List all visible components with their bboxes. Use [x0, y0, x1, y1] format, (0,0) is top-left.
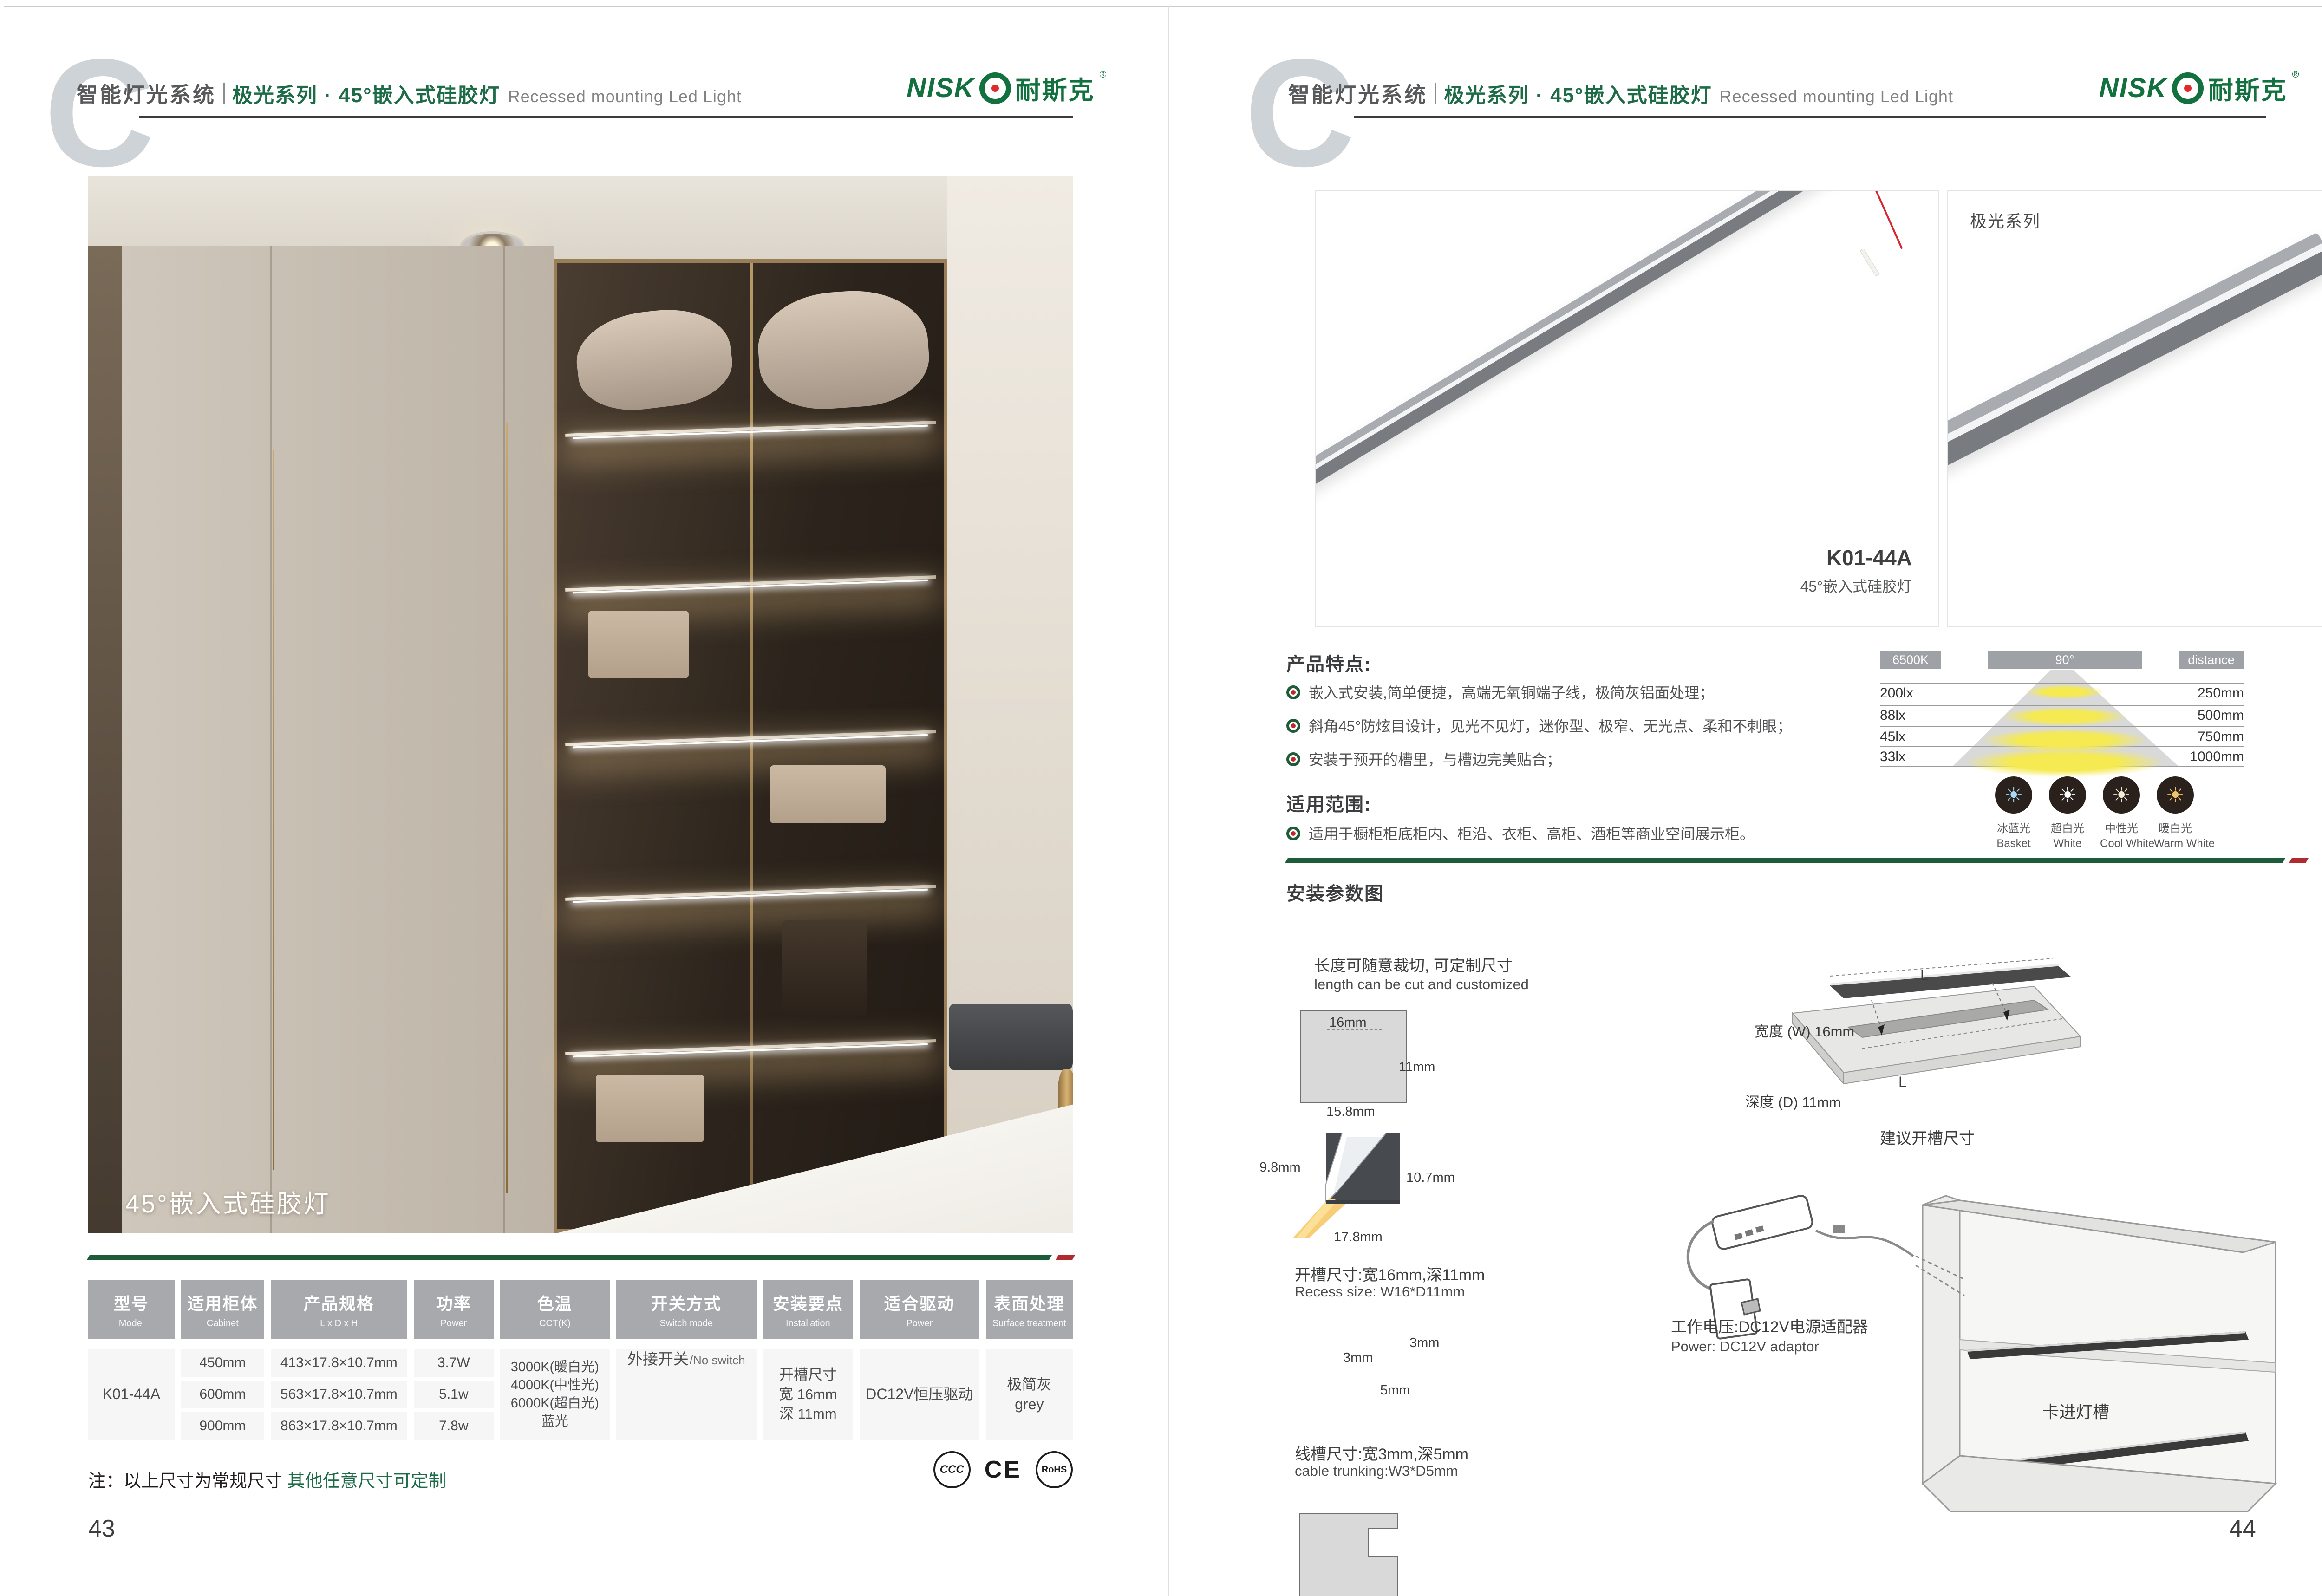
watermark-c-right: C [1245, 36, 1355, 189]
light-pool [2002, 707, 2127, 726]
col-header-switch: 开关方式Switch mode [616, 1280, 757, 1339]
dim-17-8mm: 17.8mm [1334, 1230, 1383, 1245]
page-number-left: 43 [88, 1515, 115, 1543]
cct-label-cn: 暖白光 [2154, 819, 2197, 835]
divider-green-bar [1285, 858, 2285, 863]
logo-registered-icon: ® [2292, 70, 2299, 80]
feature-text: 斜角45°防炫目设计，见光不见灯，迷你型、极窄、无光点、柔和不刺眼； [1309, 715, 1792, 737]
board-depth-label: 深度 (D) 11mm [1745, 1090, 1841, 1111]
header-left: 智能灯光系统 极光系列 · 45°嵌入式硅胶灯 Recessed mountin… [77, 78, 742, 109]
col-header-driver: 适合驱动Power [860, 1280, 979, 1339]
cell-cct: 3000K(暖白光)4000K(中性光) 6000K(超白光)蓝光 [500, 1349, 610, 1440]
lux-value: 200lx [1880, 685, 1913, 701]
wire-connector [1859, 248, 1879, 276]
scope-text: 适用于橱柜柜底柜内、柜沿、衣柜、高柜、酒柜等商业空间展示柜。 [1309, 823, 1755, 845]
distance-value: 250mm [2198, 685, 2244, 701]
cct-option-iceblue: ☀ 冰蓝光 Basket [1992, 776, 2035, 850]
cct-label-en: Basket [1992, 837, 2035, 850]
folded-textiles [770, 765, 886, 823]
rohs-cert-icon: RoHS [1036, 1451, 1073, 1488]
logo-cn: 耐斯克 [2208, 70, 2288, 106]
beam-gridline [1880, 705, 2244, 706]
col-header-model: 型号Model [88, 1280, 175, 1339]
product-model: K01-44A [1800, 545, 1912, 570]
divider-red-accent [1056, 1255, 1076, 1260]
pillow [571, 302, 737, 417]
ccc-cert-icon: CCC [933, 1451, 971, 1488]
cell-surface: 极简灰 grey [986, 1349, 1073, 1440]
distance-value: 750mm [2198, 729, 2244, 745]
light-pool [2025, 684, 2104, 699]
col-header-power: 功率Power [414, 1280, 494, 1339]
page-title: 智能灯光系统 [77, 78, 216, 109]
col-header-cct: 色温CCT(K) [500, 1280, 610, 1339]
cell-model: K01-44A [88, 1349, 175, 1440]
divider-green-bar [87, 1255, 1052, 1260]
spec-table-header-row: 型号Model 适用柜体Cabinet 产品规格L x D x H 功率Powe… [88, 1280, 1073, 1339]
logo-latin: NISK [2099, 72, 2167, 104]
cct-sun-icon: ☀ [1995, 776, 2032, 814]
dim-15-8mm: 15.8mm [1326, 1104, 1375, 1120]
hero-photo: 45°嵌入式硅胶灯 [88, 176, 1073, 1233]
install-divider [1286, 858, 2307, 863]
cct-icons-row: ☀ 冰蓝光 Basket ☀ 超白光 White ☀ 中性光 Cool Whit… [1992, 776, 2197, 850]
page-top-border [4, 6, 2322, 7]
beam-cct-box: 6500K [1880, 651, 1941, 669]
size-note: 注：以上尺寸为常规尺寸 其他任意尺寸可定制 [88, 1466, 446, 1492]
led-profile-closeup [1947, 232, 2322, 489]
board-width-label: 宽度 (W) 16mm [1755, 1020, 1854, 1041]
cct-label-en: White [2046, 837, 2089, 850]
header-rule-left [139, 116, 1073, 118]
gold-trim [273, 450, 274, 1170]
pillow [754, 286, 932, 414]
photo-caption: 45°嵌入式硅胶灯 [125, 1183, 331, 1220]
ce-cert-icon: CE [985, 1456, 1022, 1484]
cell-specs: 413×17.8×10.7mm 563×17.8×10.7mm 863×17.8… [271, 1349, 407, 1440]
dim-5mm: 5mm [1380, 1383, 1410, 1398]
col-header-install: 安装要点Installation [763, 1280, 853, 1339]
feature-item: 安装于预开的槽里，与槽边完美贴合； [1286, 749, 1853, 771]
folded-textiles [588, 611, 689, 678]
series-subtitle-en: Recessed mounting Led Light [508, 87, 742, 106]
photo-left-shadow [88, 246, 122, 1233]
feature-item: 嵌入式安装,简单便捷，高端无氧铜端子线，极简灰铝面处理； [1286, 682, 1853, 704]
beam-gridline [1880, 683, 2244, 684]
folded-textiles [596, 1075, 704, 1142]
beam-angle-box: 90° [1988, 651, 2142, 669]
recess-size-cn: 开槽尺寸:宽16mm,深11mm [1295, 1262, 1485, 1285]
cct-sun-icon: ☀ [2049, 776, 2086, 814]
cut-note-cn: 长度可随意裁切, 可定制尺寸 [1314, 953, 1513, 976]
bullet-icon [1286, 827, 1300, 840]
logo-o-icon [2172, 72, 2204, 104]
cabinet-groove-label: 卡进灯槽 [2042, 1399, 2109, 1423]
power-note-cn: 工作电压:DC12V电源适配器 [1671, 1314, 1868, 1337]
table-lamp-shade [949, 1004, 1073, 1070]
col-header-cabinet: 适用柜体Cabinet [181, 1280, 264, 1339]
watermark-c-left: C [44, 36, 155, 189]
series-label: 极光系列 [1970, 208, 2041, 232]
power-note-en: Power: DC12V adaptor [1671, 1338, 1819, 1355]
distance-value: 500mm [2198, 708, 2244, 723]
board-caption: 建议开槽尺寸 [1880, 1126, 1975, 1148]
header-separator [1435, 83, 1436, 104]
product-label: K01-44A 45°嵌入式硅胶灯 [1800, 545, 1912, 596]
beam-distance-chart: 6500K 90° distance 200lx 88lx 45lx 33lx … [1880, 651, 2244, 841]
col-header-surface: 表面处理Surface treatment [986, 1280, 1073, 1339]
dim-3mm-top: 3mm [1409, 1335, 1439, 1351]
product-model-sub: 45°嵌入式硅胶灯 [1800, 575, 1912, 596]
page-title: 智能灯光系统 [1288, 78, 1428, 109]
len-label-board: L [1898, 1074, 1907, 1091]
panel-seam [503, 246, 505, 1233]
cct-option-white: ☀ 超白光 White [2046, 776, 2089, 850]
cell-driver: DC12V恒压驱动 [860, 1349, 979, 1440]
product-photo-detail: 极光系列 [1947, 190, 2322, 627]
cut-note-en: length can be cut and customized [1314, 976, 1529, 993]
red-wire [1873, 190, 1903, 249]
page-number-right: 44 [2229, 1515, 2256, 1543]
gold-trim [506, 423, 508, 1193]
page-gutter [1168, 6, 1169, 1596]
trunk-size-cn: 线槽尺寸:宽3mm,深5mm [1295, 1441, 1468, 1464]
logo-latin: NISK [907, 72, 975, 104]
profile-cross-section [1291, 1128, 1412, 1238]
bullet-icon [1286, 752, 1300, 766]
logo-registered-icon: ® [1100, 70, 1107, 80]
logo-cn: 耐斯克 [1016, 70, 1095, 106]
wiring-cabinet-diagram [1663, 1186, 2313, 1544]
beam-distance-box: distance [2179, 651, 2244, 669]
feature-text: 嵌入式安装,简单便捷，高端无氧铜端子线，极简灰铝面处理； [1309, 682, 1714, 704]
logo-o-icon [979, 72, 1011, 104]
header-separator [223, 83, 225, 104]
handbag [782, 920, 867, 1016]
features-title: 产品特点: [1286, 649, 1371, 676]
cct-label-en: Warm White [2154, 837, 2197, 850]
catalog-spread: C 智能灯光系统 极光系列 · 45°嵌入式硅胶灯 Recessed mount… [0, 0, 2322, 1596]
header-rule-right [1354, 116, 2266, 118]
light-pool [1965, 748, 2165, 777]
spec-table-data-row: K01-44A 450mm 600mm 900mm 413×17.8×10.7m… [88, 1349, 1073, 1440]
scope-item: 适用于橱柜柜底柜内、柜沿、衣柜、高柜、酒柜等商业空间展示柜。 [1286, 823, 1853, 845]
cabinet-mullion [750, 263, 753, 1229]
trunk-diagram [1299, 1513, 1398, 1596]
certification-icons: CCC CE RoHS [920, 1451, 1073, 1488]
lux-value: 33lx [1880, 749, 1905, 765]
distance-value: 1000mm [2190, 749, 2244, 765]
len-label-top: L [1920, 967, 1929, 984]
divider-red-accent [2289, 858, 2309, 863]
series-subtitle-en: Recessed mounting Led Light [1720, 87, 1953, 106]
feature-text: 安装于预开的槽里，与槽边完美贴合； [1309, 749, 1561, 771]
beam-gridline [1880, 726, 2244, 727]
series-title: 极光系列 · 45°嵌入式硅胶灯 [232, 78, 501, 108]
cabinet-side-wall [947, 176, 1073, 1233]
cell-cabinet: 450mm 600mm 900mm [181, 1349, 264, 1440]
install-title: 安装参数图 [1286, 879, 1384, 905]
cct-label-cn: 超白光 [2046, 819, 2089, 835]
cct-label-en: Cool White [2100, 837, 2143, 850]
cct-label-cn: 冰蓝光 [1992, 819, 2035, 835]
feature-item: 斜角45°防炫目设计，见光不见灯，迷你型、极窄、无光点、柔和不刺眼； [1286, 715, 1853, 737]
display-cabinet [554, 259, 947, 1233]
col-header-specs: 产品规格L x D x H [271, 1280, 407, 1339]
cell-power: 3.7W 5.1w 7.8w [414, 1349, 494, 1440]
dim-16mm: 16mm [1329, 1015, 1367, 1030]
recess-size-en: Recess size: W16*D11mm [1295, 1283, 1465, 1300]
cct-sun-icon: ☀ [2103, 776, 2140, 814]
bullet-icon [1286, 685, 1300, 699]
section-divider [88, 1255, 1074, 1260]
spec-table: 型号Model 适用柜体Cabinet 产品规格L x D x H 功率Powe… [88, 1280, 1073, 1440]
cct-sun-icon: ☀ [2157, 776, 2194, 814]
wardrobe-panels [122, 246, 554, 1233]
bullet-icon [1286, 719, 1300, 733]
dim-9-8mm: 9.8mm [1259, 1160, 1301, 1175]
dim-10-7mm: 10.7mm [1406, 1170, 1455, 1186]
trunk-notch [1368, 1528, 1398, 1557]
cct-label-cn: 中性光 [2100, 819, 2143, 835]
cct-option-coolwhite: ☀ 中性光 Cool White [2100, 776, 2143, 850]
cct-option-warmwhite: ☀ 暖白光 Warm White [2154, 776, 2197, 850]
led-profile-bar [1315, 190, 1875, 497]
lux-value: 45lx [1880, 729, 1905, 745]
brand-logo: NISK 耐斯克 ® [907, 70, 1106, 106]
panel-seam [270, 246, 272, 1233]
trunk-size-en: cable trunking:W3*D5mm [1295, 1463, 1458, 1479]
series-title: 极光系列 · 45°嵌入式硅胶灯 [1444, 78, 1712, 108]
scope-title: 适用范围: [1286, 789, 1371, 816]
cell-switch: 外接开关 /No switch [616, 1349, 757, 1440]
dim-11mm: 11mm [1399, 1060, 1435, 1075]
dim-3mm-left: 3mm [1343, 1350, 1373, 1366]
lux-value: 88lx [1880, 708, 1905, 723]
brand-logo: NISK 耐斯克 ® [2099, 70, 2299, 106]
product-photo-main: K01-44A 45°嵌入式硅胶灯 [1315, 190, 1939, 627]
header-right: 智能灯光系统 极光系列 · 45°嵌入式硅胶灯 Recessed mountin… [1288, 78, 1953, 109]
cell-install: 开槽尺寸 宽 16mm 深 11mm [763, 1349, 853, 1440]
